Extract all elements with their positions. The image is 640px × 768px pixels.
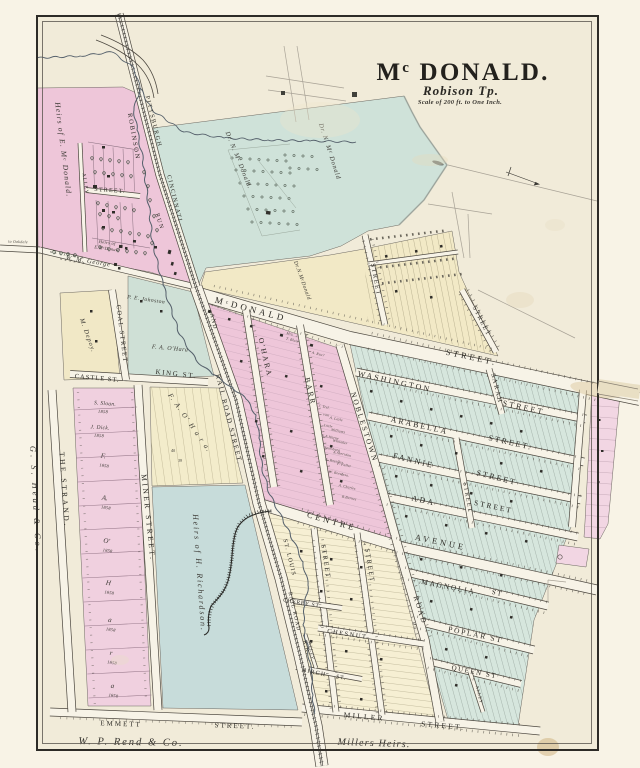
svg-text:x: x: [59, 251, 61, 256]
svg-text:to Oakdale: to Oakdale: [8, 239, 28, 245]
svg-text:40: 40: [171, 448, 175, 453]
svg-text:x: x: [60, 256, 62, 261]
svg-text:x: x: [50, 249, 52, 254]
svg-text:x: x: [78, 259, 80, 264]
svg-text:39: 39: [178, 458, 182, 463]
svg-text:x: x: [83, 260, 85, 265]
svg-text:STREET.: STREET.: [214, 721, 255, 730]
svg-text:x: x: [73, 253, 75, 258]
svg-text:x: x: [55, 250, 57, 255]
svg-text:x: x: [74, 258, 76, 263]
svg-text:Scale of 200 ft. to One Inch.: Scale of 200 ft. to One Inch.: [418, 99, 502, 106]
svg-text:x: x: [77, 254, 79, 259]
svg-text:EMMETT: EMMETT: [100, 719, 142, 728]
svg-text:x: x: [82, 255, 84, 260]
svg-text:x: x: [64, 251, 66, 256]
svg-text:Robison Tp.: Robison Tp.: [422, 83, 499, 98]
svg-text:A.: A.: [100, 493, 108, 502]
svg-text:W. P. Rend & Co.: W. P. Rend & Co.: [78, 736, 183, 749]
svg-text:1858: 1858: [94, 433, 105, 439]
svg-text:x: x: [68, 252, 70, 257]
svg-text:1858: 1858: [98, 409, 109, 415]
svg-text:x: x: [69, 258, 71, 263]
svg-text:x: x: [65, 257, 67, 262]
